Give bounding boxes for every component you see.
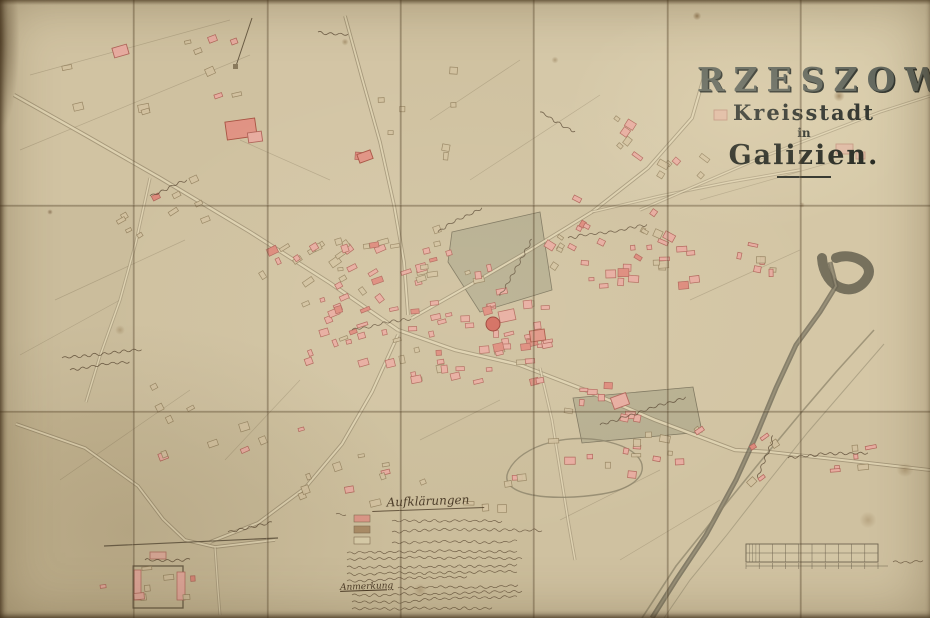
building [672,157,681,165]
building [375,293,384,303]
building [618,269,629,277]
building [475,271,482,279]
building [189,175,199,184]
building [565,457,576,464]
building [172,191,181,199]
building [390,243,400,248]
building [427,271,438,277]
legend-script-line [392,527,542,535]
oxbow-loop [507,439,642,498]
river-wislok [652,262,836,618]
masonry-building-swatch [354,515,370,522]
building [633,439,640,447]
road [215,547,220,615]
building [164,574,174,580]
building [346,339,352,344]
building [165,415,173,423]
scale-label-script [893,559,923,564]
building [498,505,507,513]
building [634,254,642,261]
building [581,260,589,265]
building [628,471,637,479]
building [434,241,441,247]
building [517,474,526,482]
building [632,152,643,161]
building [125,227,132,232]
legend-script-line [392,518,502,525]
landmark-building [150,552,166,559]
building [525,358,535,363]
building [486,367,492,371]
building [430,313,440,320]
building [641,228,648,234]
river-highlight [652,262,836,618]
building [302,276,314,287]
building [214,93,223,99]
building [240,446,249,453]
building [516,360,526,365]
field-boundary-line [240,140,330,180]
building [689,275,699,283]
building [769,269,773,276]
building [357,332,365,339]
building [632,454,641,457]
church-annex [498,309,516,323]
building [183,594,190,599]
building [737,252,742,259]
landmark-building [112,44,129,58]
building [606,270,616,278]
building [493,342,504,352]
building [604,382,613,389]
landmark-building [247,131,262,143]
building [443,152,448,160]
building [411,375,422,384]
building [207,439,218,448]
building [150,383,158,390]
building [408,326,416,331]
building [184,40,191,45]
building [200,216,210,224]
building [677,246,687,252]
building [430,300,438,305]
building [411,309,420,314]
building [441,365,448,373]
building [858,464,869,471]
building [416,275,426,283]
river-bend [822,256,869,289]
building [339,275,347,282]
building [414,347,420,353]
building [564,408,573,414]
building [334,305,343,313]
road-casing [14,95,398,330]
building [852,445,858,451]
field-boundary-line [55,240,185,300]
building [675,459,684,465]
building [332,339,338,347]
building [628,275,639,282]
road-casing [210,335,398,542]
script-label [757,435,776,478]
building [144,585,150,592]
stream-channel [664,344,884,618]
script-label [318,30,348,38]
legend-script-line [392,539,517,545]
field-boundary-line [20,55,250,150]
building [100,584,106,588]
building [378,98,384,103]
building [358,454,365,458]
field-boundary-line [430,60,520,120]
road [14,95,398,330]
building [645,432,651,438]
building [668,451,673,455]
building [461,316,470,322]
building [298,427,304,432]
road-casing [592,170,800,212]
building [587,389,597,395]
building [479,346,489,354]
building [647,245,652,250]
building [630,245,635,250]
note-script-line [352,605,492,611]
legend-script-line [347,554,522,562]
building [116,217,126,225]
building [344,486,354,494]
building [504,331,514,337]
building [377,238,389,246]
building [142,566,152,570]
building [420,265,428,270]
building [442,144,450,152]
building [617,143,624,150]
building [650,209,658,217]
building [623,448,629,455]
building [504,480,512,487]
building [62,64,72,70]
avenue-line [236,18,252,66]
building [830,469,840,473]
building [437,319,446,325]
building [187,405,195,412]
building [598,394,604,401]
building [279,244,290,252]
building [465,323,474,328]
building [399,355,405,364]
building [854,454,858,459]
legend-script-line [347,570,517,576]
building [208,35,218,44]
building [614,116,620,122]
building [572,195,582,203]
building [400,106,405,111]
field-boundary-line [470,95,600,180]
building [382,329,388,335]
building [168,207,178,216]
landmark-building [856,152,865,159]
map-sheet: RZESZOW Kreisstadt in Galizien. Aufkläru… [0,0,930,618]
building [657,171,665,179]
landmark-building [357,150,373,163]
building [520,343,530,351]
note-script-line [352,595,517,604]
legend-note-label: Anmerkung [340,581,394,593]
building [423,248,430,255]
building [760,433,769,441]
park-area [448,212,552,312]
building [393,337,401,342]
building [747,477,757,487]
field-boundary-line [60,390,190,480]
building [205,66,216,76]
road [16,424,275,547]
building [363,244,369,249]
building [623,136,633,146]
building [320,297,325,302]
building [347,264,358,272]
field-boundary-line [420,400,500,440]
building [748,242,758,247]
church-building [486,317,500,331]
map-canvas [0,0,930,618]
building [536,377,544,383]
building [302,301,310,308]
field-boundary-line [225,380,300,460]
building [697,172,704,179]
building [686,250,694,255]
road [210,335,398,542]
building [659,435,670,443]
landmark-building [836,144,853,154]
building [599,284,608,289]
building [580,388,588,392]
outline-parcel-swatch [354,537,370,544]
building [548,438,559,443]
avenue-marker [233,64,238,69]
building [550,262,559,271]
field-boundary-line [690,250,800,300]
wooden-building-swatch [354,526,370,533]
building [194,48,203,55]
building [699,153,710,162]
building [446,250,453,256]
building [428,331,434,337]
building [653,456,661,462]
building [385,358,395,368]
legend-script-line [347,563,517,570]
building [534,322,542,330]
building [358,358,369,367]
building [451,103,456,108]
building [653,260,659,265]
building [589,277,594,280]
building [388,131,393,135]
building [335,238,343,246]
building [332,462,342,472]
building [368,269,378,277]
building [371,276,383,285]
building [456,367,464,371]
building [258,436,267,445]
building [659,257,669,261]
building [134,593,145,600]
building [191,576,196,582]
building [605,462,610,468]
field-boundary-line [700,160,840,200]
building [754,266,762,273]
building [597,238,606,246]
building [275,257,281,264]
building [437,359,444,364]
building [259,271,267,280]
building [307,349,313,356]
landmark-building [529,329,545,342]
building [620,414,629,422]
building [319,328,330,337]
building [493,330,498,337]
building [369,242,379,248]
building [756,257,765,263]
building [678,281,689,289]
building [420,479,427,485]
building [587,454,593,459]
road-casing [16,424,275,547]
building [436,350,442,355]
building [568,243,577,251]
building [557,234,563,240]
field-boundary-line [560,470,660,520]
building [304,357,313,366]
building [239,422,250,432]
building [338,267,344,271]
legend-script-line [336,513,346,515]
building [473,378,483,384]
road [86,178,150,402]
note-script-line [398,584,518,590]
building [339,293,349,301]
building [389,307,398,312]
building [230,38,238,45]
building [429,257,437,262]
building [382,462,389,466]
building [758,474,766,481]
building [450,67,458,74]
road [770,452,930,470]
building [541,305,549,309]
building [306,473,312,480]
building [523,300,532,309]
legend-script-line [347,548,517,555]
building [349,329,357,335]
building [358,287,366,296]
building [232,92,242,98]
building [73,102,84,111]
building [482,306,492,316]
building [445,313,452,317]
building [155,403,164,412]
building [579,399,584,406]
building [653,229,663,239]
building [865,445,876,450]
building [618,278,624,286]
building [450,372,460,381]
landmark-building [714,110,727,120]
